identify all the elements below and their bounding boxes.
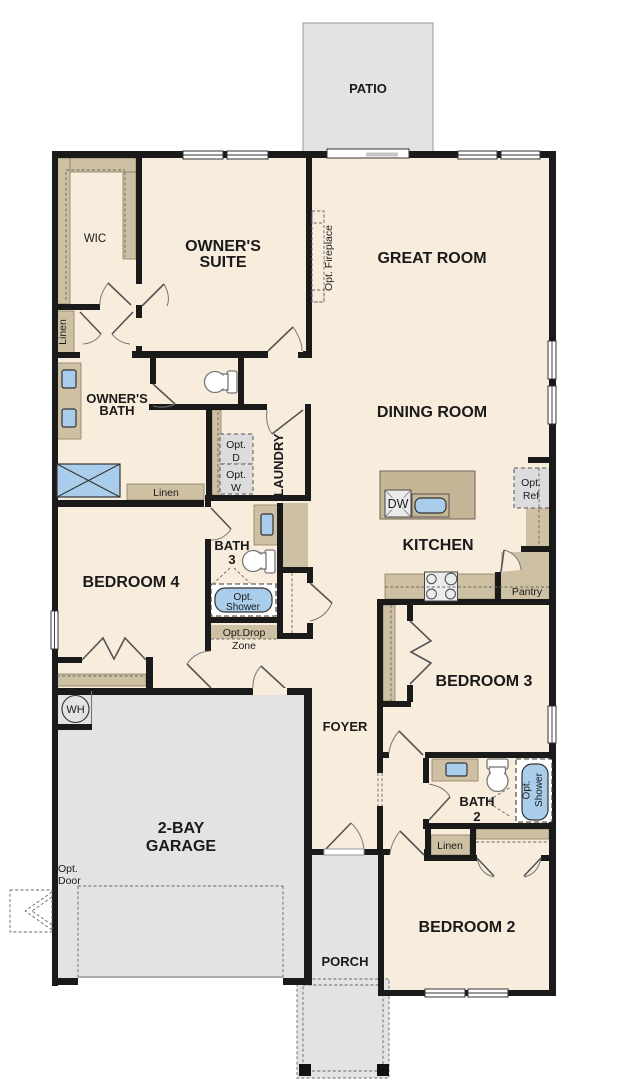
svg-text:WH: WH — [66, 704, 84, 716]
svg-text:BEDROOM 2: BEDROOM 2 — [419, 919, 516, 936]
svg-text:PORCH: PORCH — [322, 954, 369, 969]
svg-text:WIC: WIC — [84, 233, 106, 245]
svg-text:Zone: Zone — [232, 640, 256, 652]
svg-text:Pantry: Pantry — [512, 586, 543, 598]
svg-text:DW: DW — [388, 497, 409, 511]
svg-text:Shower: Shower — [534, 772, 545, 807]
svg-text:Opt.: Opt. — [522, 781, 533, 800]
svg-text:BEDROOM 4: BEDROOM 4 — [83, 574, 180, 591]
svg-text:Opt.: Opt. — [226, 439, 246, 451]
svg-text:PATIO: PATIO — [349, 81, 387, 96]
svg-text:FOYER: FOYER — [323, 719, 368, 734]
svg-text:2: 2 — [473, 809, 480, 824]
svg-text:Opt.: Opt. — [58, 863, 78, 875]
svg-text:2-BAY: 2-BAY — [158, 820, 205, 837]
svg-text:Shower: Shower — [226, 602, 261, 613]
svg-text:Door: Door — [58, 875, 81, 887]
svg-text:Opt.Drop: Opt.Drop — [223, 627, 266, 639]
svg-text:BATH: BATH — [459, 794, 494, 809]
svg-text:Linen: Linen — [153, 487, 179, 499]
svg-text:W: W — [231, 482, 241, 494]
svg-text:DINING ROOM: DINING ROOM — [377, 404, 487, 421]
svg-text:LAUNDRY: LAUNDRY — [271, 433, 286, 496]
svg-text:SUITE: SUITE — [199, 254, 246, 271]
svg-text:D: D — [232, 452, 240, 464]
svg-text:KITCHEN: KITCHEN — [402, 537, 473, 554]
svg-text:Ref: Ref — [523, 490, 539, 502]
svg-text:GREAT ROOM: GREAT ROOM — [377, 250, 486, 267]
svg-text:Opt. Fireplace: Opt. Fireplace — [323, 225, 335, 291]
svg-text:BATH: BATH — [99, 403, 134, 418]
svg-text:OWNER'S: OWNER'S — [185, 238, 261, 255]
svg-text:Linen: Linen — [57, 319, 69, 345]
svg-text:Opt.: Opt. — [226, 469, 246, 481]
svg-text:BEDROOM 3: BEDROOM 3 — [436, 673, 533, 690]
svg-text:Opt.: Opt. — [521, 477, 541, 489]
svg-text:BATH: BATH — [214, 538, 249, 553]
svg-text:Linen: Linen — [437, 840, 463, 852]
svg-text:3: 3 — [228, 552, 235, 567]
svg-text:GARAGE: GARAGE — [146, 838, 217, 855]
